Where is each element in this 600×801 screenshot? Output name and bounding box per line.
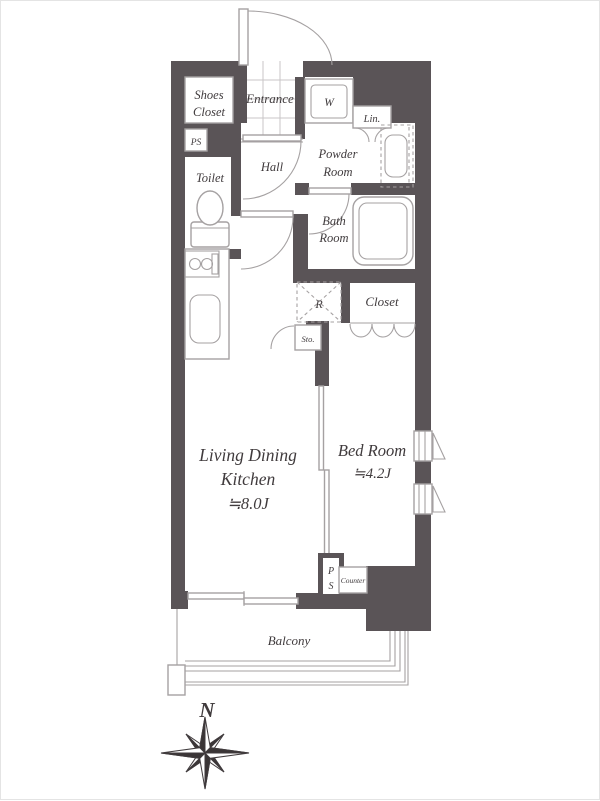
casement-window-lower	[414, 484, 445, 514]
balcony-label: Balcony	[268, 633, 311, 648]
ps-upper-label: PS	[190, 138, 202, 148]
linen-cabinet: Lin.	[353, 106, 391, 142]
counter-label: Counter	[341, 576, 366, 585]
compass: N	[161, 698, 249, 789]
room-hall: Hall	[241, 135, 301, 269]
refrigerator-label: R	[314, 297, 323, 311]
north-label: N	[198, 698, 215, 722]
bathtub	[353, 197, 413, 265]
entrance-door-swing	[239, 9, 332, 65]
shoes-closet-label-1: Shoes	[194, 88, 223, 102]
room-bath: Bath Room	[309, 188, 413, 265]
bath-label-2: Room	[318, 231, 348, 245]
bath-label-1: Bath	[322, 214, 346, 228]
refrigerator-space: R	[297, 282, 341, 322]
ldk-label-2: Kitchen	[220, 469, 276, 489]
vanity-unit	[381, 125, 413, 187]
pipe-space-upper: PS	[185, 129, 207, 151]
hall-label: Hall	[260, 160, 284, 174]
room-ldk: Living Dining Kitchen ≒8.0J	[198, 445, 297, 513]
washer-label: W	[324, 97, 335, 109]
ldk-label-1: Living Dining	[198, 445, 297, 465]
counter: Counter	[339, 567, 367, 593]
storage-closet: Sto.	[271, 325, 321, 350]
bedroom-size-label: ≒4.2J	[353, 466, 392, 482]
ps-lower-label-s: S	[329, 581, 334, 592]
linen-label: Lin.	[363, 114, 381, 125]
compass-rose	[161, 717, 249, 789]
entrance-label: Entrance	[245, 91, 294, 106]
room-shoes-closet: Shoes Closet	[185, 77, 233, 123]
toilet-fixture	[191, 191, 229, 247]
floor-plan: Entrance Shoes Closet PS Toilet Hall	[1, 1, 600, 801]
closet-label: Closet	[365, 294, 399, 309]
powder-label-1: Powder	[318, 147, 358, 161]
shoes-closet-label-2: Closet	[193, 105, 225, 119]
casement-window-upper	[414, 431, 445, 461]
sliding-partition	[319, 386, 329, 554]
ldk-door-swing	[241, 211, 293, 269]
ldk-size-label: ≒8.0J	[227, 494, 269, 513]
room-toilet: Toilet	[191, 171, 229, 247]
floor-plan-page: Entrance Shoes Closet PS Toilet Hall	[0, 0, 600, 800]
ps-lower-label-p: P	[327, 566, 334, 577]
bedroom-label: Bed Room	[338, 441, 406, 460]
storage-door-swing	[271, 326, 294, 349]
toilet-label: Toilet	[196, 171, 225, 185]
closet-folding-doors	[350, 323, 415, 337]
washer-pan: W	[305, 79, 353, 123]
powder-label-2: Room	[322, 165, 352, 179]
storage-label: Sto.	[302, 334, 315, 344]
kitchen-unit	[185, 249, 229, 359]
room-closet: Closet	[350, 294, 415, 337]
sliding-glass-door	[188, 591, 298, 606]
